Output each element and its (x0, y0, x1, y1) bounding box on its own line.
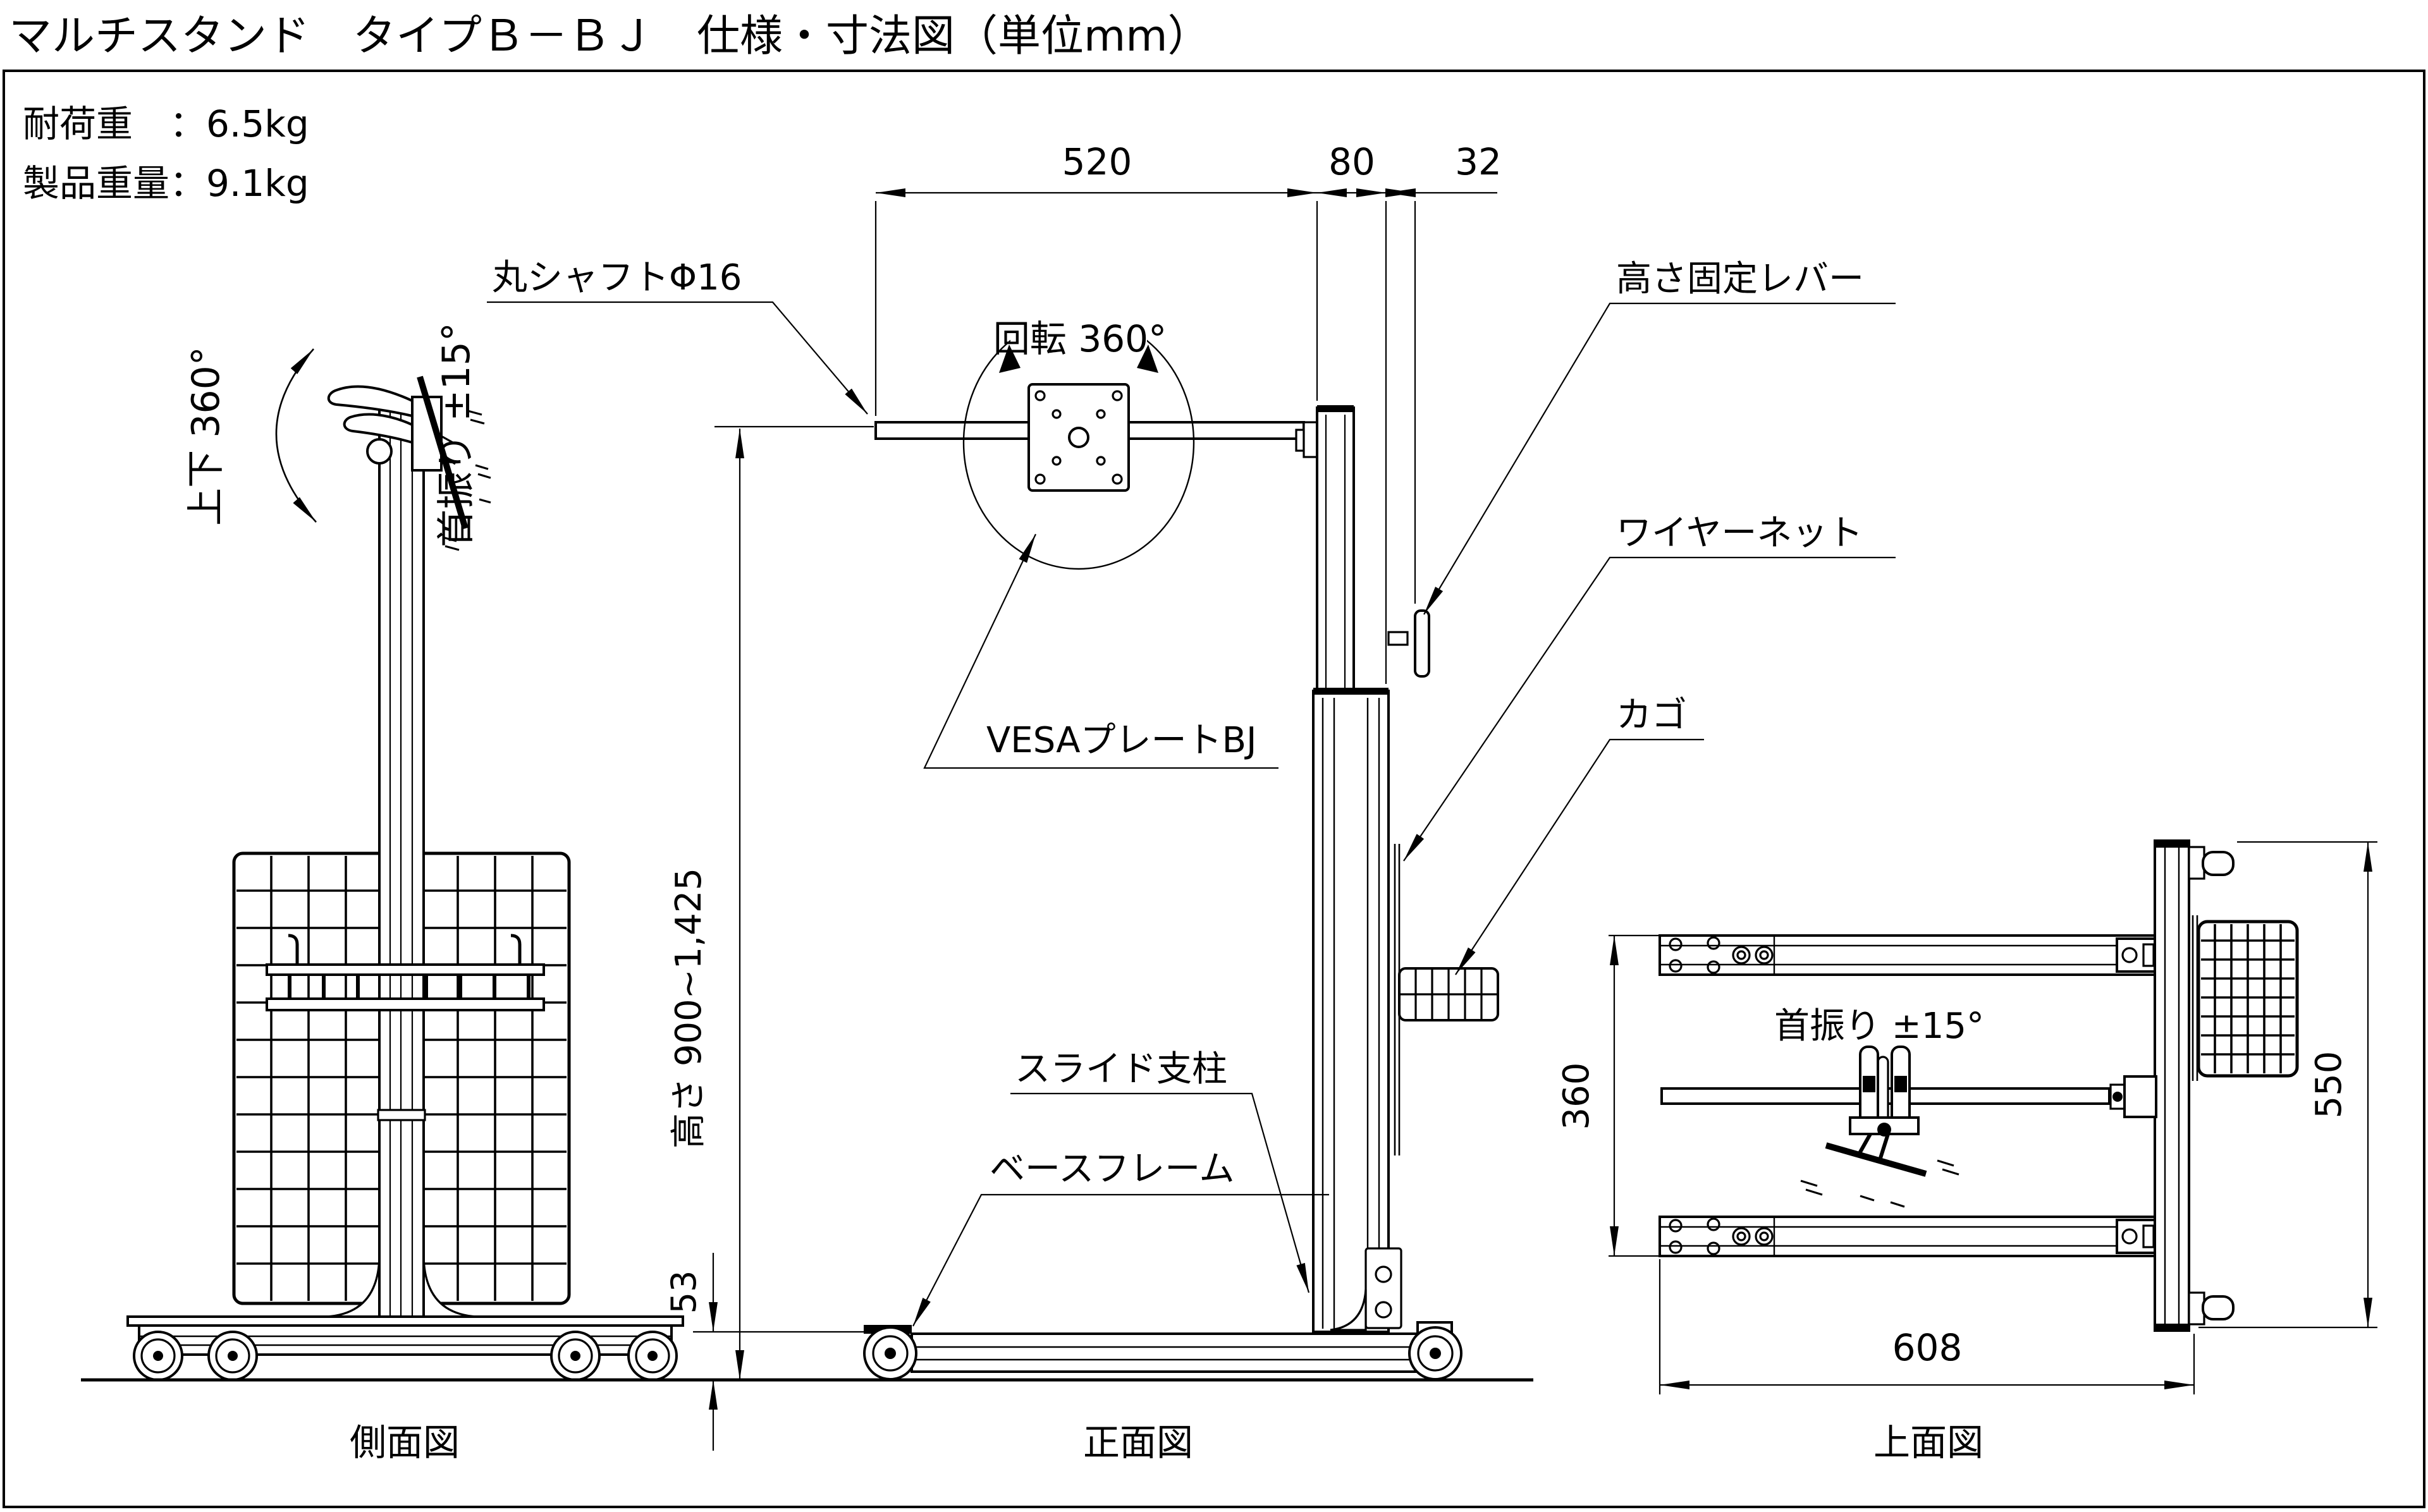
page-title: マルチスタンド タイプＢ－ＢＪ 仕様・寸法図（単位mm） (9, 11, 1210, 61)
basket-front (1399, 968, 1498, 1020)
side-view-caption: 側面図 (350, 1421, 460, 1464)
caster-wheel (134, 1332, 182, 1380)
side-base-top-plate (128, 1317, 683, 1326)
svg-text:高さ固定レバー: 高さ固定レバー (1616, 259, 1864, 300)
top-plate-hatch (1801, 1161, 1959, 1207)
caster-front-left (864, 1327, 916, 1379)
cross-member-cap-top (2155, 841, 2189, 848)
label-vesa-plate: VESAプレートBJ (924, 534, 1278, 768)
svg-text:スライド支柱: スライド支柱 (1015, 1049, 1227, 1090)
base-frame-body (912, 1334, 1418, 1372)
load-capacity-text: 耐荷重 ：6.5kg (23, 102, 309, 145)
front-view-drawing: 520 80 32 回転 360° (487, 140, 1896, 1464)
pole-gusset-left (326, 1257, 379, 1317)
top-swivel-annotation: 首振り ±15° (1774, 1006, 1984, 1047)
basket-top (2198, 922, 2297, 1076)
side-swivel-annotation: 首振り ±15° (434, 322, 479, 547)
label-shaft: 丸シャフトΦ16 (487, 257, 868, 414)
column-base-bracket (1366, 1248, 1401, 1328)
top-beam-front (1660, 936, 2159, 975)
dim-360-label: 360 (1556, 1063, 1597, 1130)
label-wire-net: ワイヤーネット (1404, 513, 1896, 861)
top-beam-rear (1660, 1217, 2159, 1256)
shaft-clamp (1304, 422, 1317, 457)
dim-520-label: 520 (1062, 140, 1132, 183)
front-view-caption: 正面図 (1083, 1421, 1193, 1464)
dim-53-label: 53 (664, 1271, 704, 1314)
top-shaft-clamp (2111, 1076, 2156, 1117)
dim-32-label: 32 (1455, 140, 1502, 183)
slide-column-outer (1313, 691, 1389, 1332)
caster-wheel (551, 1332, 599, 1380)
caster-front-right (1409, 1327, 1461, 1379)
svg-text:VESAプレートBJ: VESAプレートBJ (986, 720, 1257, 761)
wire-net-edge-top (2193, 915, 2197, 1081)
top-monitor-edge (1826, 1145, 1926, 1174)
basket-rail-top (267, 965, 544, 975)
dim-550: 550 (2198, 842, 2377, 1327)
dim-550-label: 550 (2308, 1051, 2350, 1119)
height-lock-lever (1389, 611, 1429, 676)
base-height-dimension: 53 (664, 1253, 865, 1451)
label-base-frame: ベースフレーム (913, 1149, 1329, 1326)
updown-arc-arrow (276, 349, 316, 522)
head-pivot (367, 439, 391, 463)
spec-drawing-canvas: マルチスタンド タイプＢ－ＢＪ 仕様・寸法図（単位mm） 耐荷重 ：6.5kg … (0, 0, 2428, 1512)
clamp-arm-upper (329, 386, 412, 416)
cross-member-cap-bottom (2155, 1324, 2189, 1331)
basket-rail-bottom (267, 999, 544, 1010)
beam-connector-front (2117, 939, 2156, 972)
height-dimension: 高さ 900~1,425 (668, 427, 874, 1380)
top-caster-b (2189, 1293, 2233, 1324)
drawing-frame-border (4, 71, 2424, 1507)
shaft-clamp-step (1296, 430, 1304, 451)
top-head-assembly (1801, 1047, 1959, 1207)
product-weight-text: 製品重量：9.1kg (23, 162, 309, 205)
svg-text:ベースフレーム: ベースフレーム (990, 1149, 1235, 1190)
caster-wheel (209, 1332, 257, 1380)
caster-wheel (628, 1332, 677, 1380)
outer-tube-cap (1313, 688, 1389, 695)
beam-connector-rear (2117, 1220, 2156, 1253)
rotation-annotation: 回転 360° (993, 317, 1167, 360)
vesa-plate (1029, 384, 1129, 491)
inner-tube-cap (1317, 405, 1354, 412)
top-view-drawing: 首振り ±15° 360 550 608 上面図 (1556, 841, 2377, 1464)
svg-text:カゴ: カゴ (1616, 695, 1687, 736)
dim-80-label: 80 (1328, 140, 1375, 183)
inner-slide-tube (1317, 408, 1354, 692)
front-top-dimensions: 520 80 32 (876, 140, 1502, 684)
top-caster-a (2189, 847, 2233, 879)
side-view-drawing: 上下 360° 首振り ±15° (128, 322, 683, 1464)
svg-text:ワイヤーネット: ワイヤーネット (1616, 513, 1863, 554)
dim-360: 360 (1556, 936, 1663, 1256)
dim-608: 608 (1660, 1259, 2194, 1394)
spec-block: 耐荷重 ：6.5kg 製品重量：9.1kg (23, 102, 309, 205)
height-dim-label: 高さ 900~1,425 (668, 868, 709, 1149)
pole-gusset-right (424, 1257, 477, 1317)
label-height-lever: 高さ固定レバー (1424, 259, 1896, 614)
svg-text:丸シャフトΦ16: 丸シャフトΦ16 (492, 257, 742, 298)
top-view-caption: 上面図 (1873, 1421, 1983, 1464)
updown-annotation: 上下 360° (184, 346, 228, 526)
label-basket: カゴ (1456, 695, 1704, 975)
dim-608-label: 608 (1892, 1326, 1963, 1369)
top-cross-member (2155, 841, 2189, 1331)
side-pole-joint (378, 1110, 425, 1120)
